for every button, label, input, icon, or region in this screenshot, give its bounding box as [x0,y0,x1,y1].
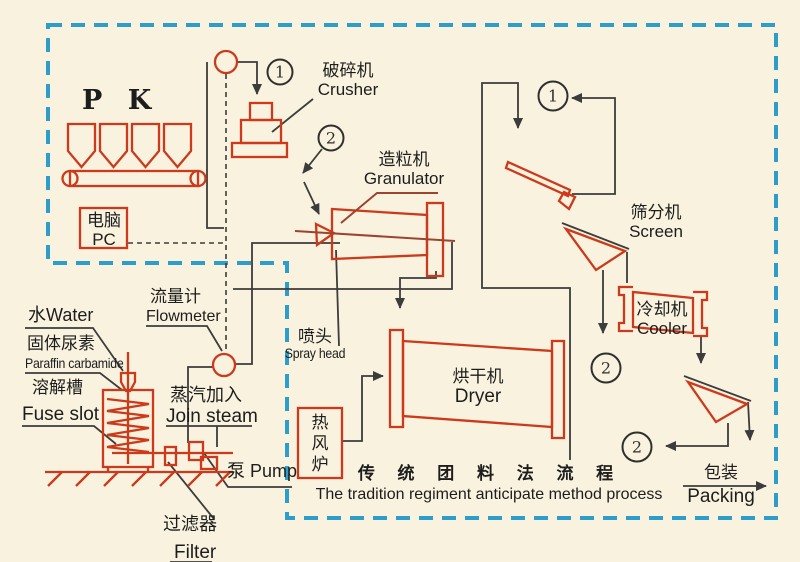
spray-lance [295,231,455,241]
water-label: 水Water [28,305,93,325]
crusher-label-en: Crusher [318,80,378,99]
ground-hatching [45,472,233,486]
crusher-label-zh: 破碎机 [318,61,378,80]
pc-label-en: PC [87,230,121,249]
pc-label-zh: 电脑 [87,211,121,230]
screen-deck-3 [684,376,751,422]
process-flow-diagram: P K 电脑 PC 破碎机 Crusher 造粒机 Granulator 筛分机… [0,0,800,562]
join-steam-label-zh: 蒸汽加入 [170,385,242,405]
fuse-slot-label-zh: 溶解槽 [32,378,83,397]
crusher-body [232,103,287,157]
dryer-label-zh: 烘干机 [453,367,504,386]
cooler-label-en: Cooler [637,319,688,338]
spray-head-label-zh: 喷头 [281,327,350,346]
feed-material-label: P K [82,86,159,116]
feed-hoppers [68,124,191,167]
packing-label-en: Packing [687,486,755,507]
fuse-slot-label-en: Fuse slot [22,404,99,425]
screen-label-en: Screen [629,222,683,241]
pc-label: 电脑 PC [87,211,121,249]
elevator-pulley [215,51,237,73]
flowmeter-symbol [209,350,239,380]
connector-2-final-screen: 2 [622,432,653,463]
dryer-label-en: Dryer [453,386,504,407]
crusher-label: 破碎机 Crusher [318,61,378,99]
granulator-label-en: Granulator [364,169,444,188]
granulator-label-zh: 造粒机 [364,150,444,169]
flowmeter-label-en: Flowmeter [146,308,221,326]
connector-2-granulator: 2 [318,125,345,152]
filter-label-zh: 过滤器 [163,514,217,534]
connector-1-crusher: 1 [267,59,294,86]
granulator-label: 造粒机 Granulator [364,150,444,188]
solid-urea-label-en: Paraffin carbamide [25,356,123,372]
caption-zh: 传 统 团 料 法 流 程 [358,464,622,483]
pump-label: 泵 Pump [227,461,297,481]
screen-label: 筛分机 Screen [629,203,683,241]
belt-conveyor [63,171,206,186]
cooler-label: 冷却机 Cooler [637,300,688,338]
screen-deck-1 [506,162,575,209]
flowmeter-label-zh: 流量计 [150,287,201,306]
spray-head-label-en: Spray head [285,346,345,362]
filter-label-en: Filter [174,542,216,562]
granulator-leader-line [341,193,438,223]
screen-deck-2 [562,223,629,270]
dryer-label: 烘干机 Dryer [453,367,504,407]
connector-2-screen-fines: 2 [591,353,622,384]
screen-label-zh: 筛分机 [629,203,683,222]
packing-label-zh: 包装 [704,463,738,482]
connector-1-screen: 1 [538,81,569,112]
filter-box [165,447,176,465]
cooler-label-zh: 冷却机 [637,300,688,319]
caption-en: The tradition regiment anticipate method… [316,486,663,504]
solid-urea-label-zh: 固体尿素 [27,334,95,353]
spray-head-label: 喷头 Spray head [281,327,350,362]
hot-air-furnace-label: 热风炉 [307,412,333,475]
join-steam-label-en: Join steam [166,406,258,427]
